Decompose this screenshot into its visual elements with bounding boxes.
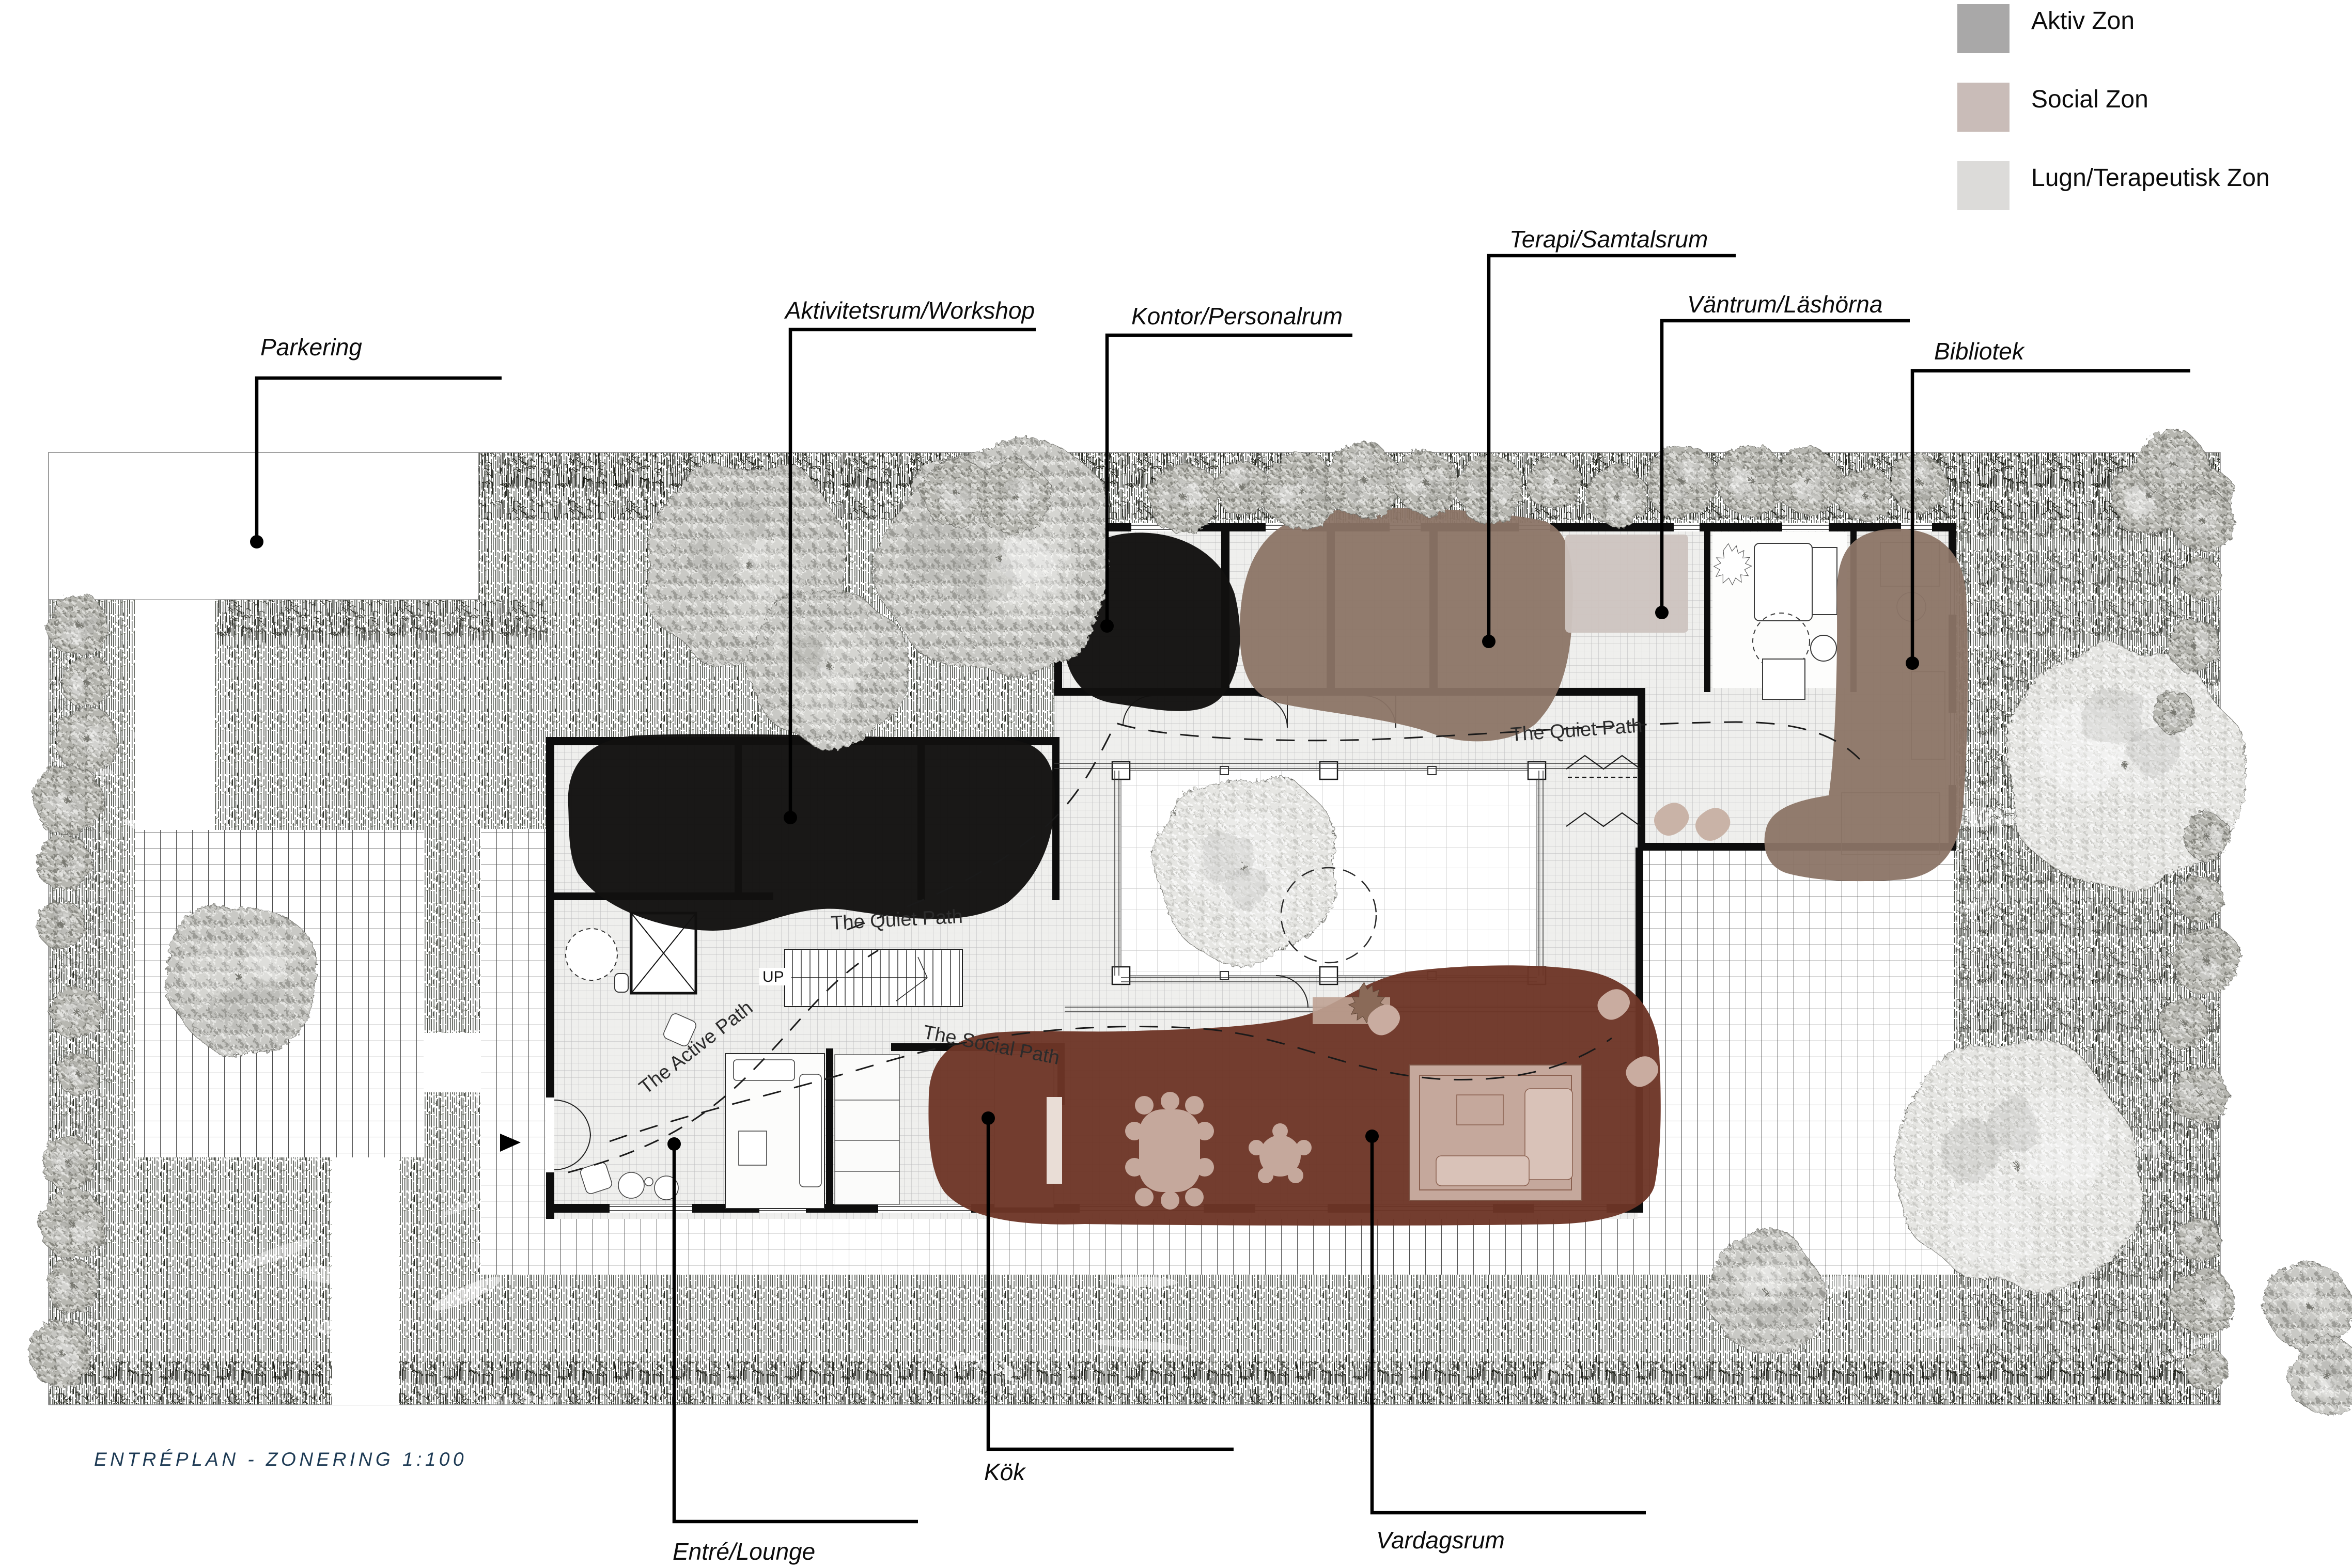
svg-text:Aktiv Zon: Aktiv Zon: [2031, 7, 2135, 35]
svg-text:Social Zon: Social Zon: [2031, 86, 2148, 113]
svg-text:Vardagsrum: Vardagsrum: [1376, 1527, 1505, 1554]
svg-text:Entré/Lounge: Entré/Lounge: [673, 1538, 815, 1565]
svg-text:UP: UP: [762, 968, 784, 985]
svg-text:Aktivitetsrum/Workshop: Aktivitetsrum/Workshop: [784, 297, 1035, 324]
svg-text:Bibliotek: Bibliotek: [1934, 338, 2025, 365]
svg-text:Väntrum/Läshörna: Väntrum/Läshörna: [1687, 291, 1882, 318]
svg-text:ENTRÉPLAN - ZONERING 1:100: ENTRÉPLAN - ZONERING 1:100: [94, 1449, 467, 1470]
svg-text:Kök: Kök: [984, 1459, 1026, 1485]
svg-text:Lugn/Terapeutisk Zon: Lugn/Terapeutisk Zon: [2031, 164, 2270, 192]
svg-text:Terapi/Samtalsrum: Terapi/Samtalsrum: [1509, 226, 1708, 253]
svg-text:Kontor/Personalrum: Kontor/Personalrum: [1131, 303, 1343, 330]
svg-text:Parkering: Parkering: [260, 334, 362, 360]
